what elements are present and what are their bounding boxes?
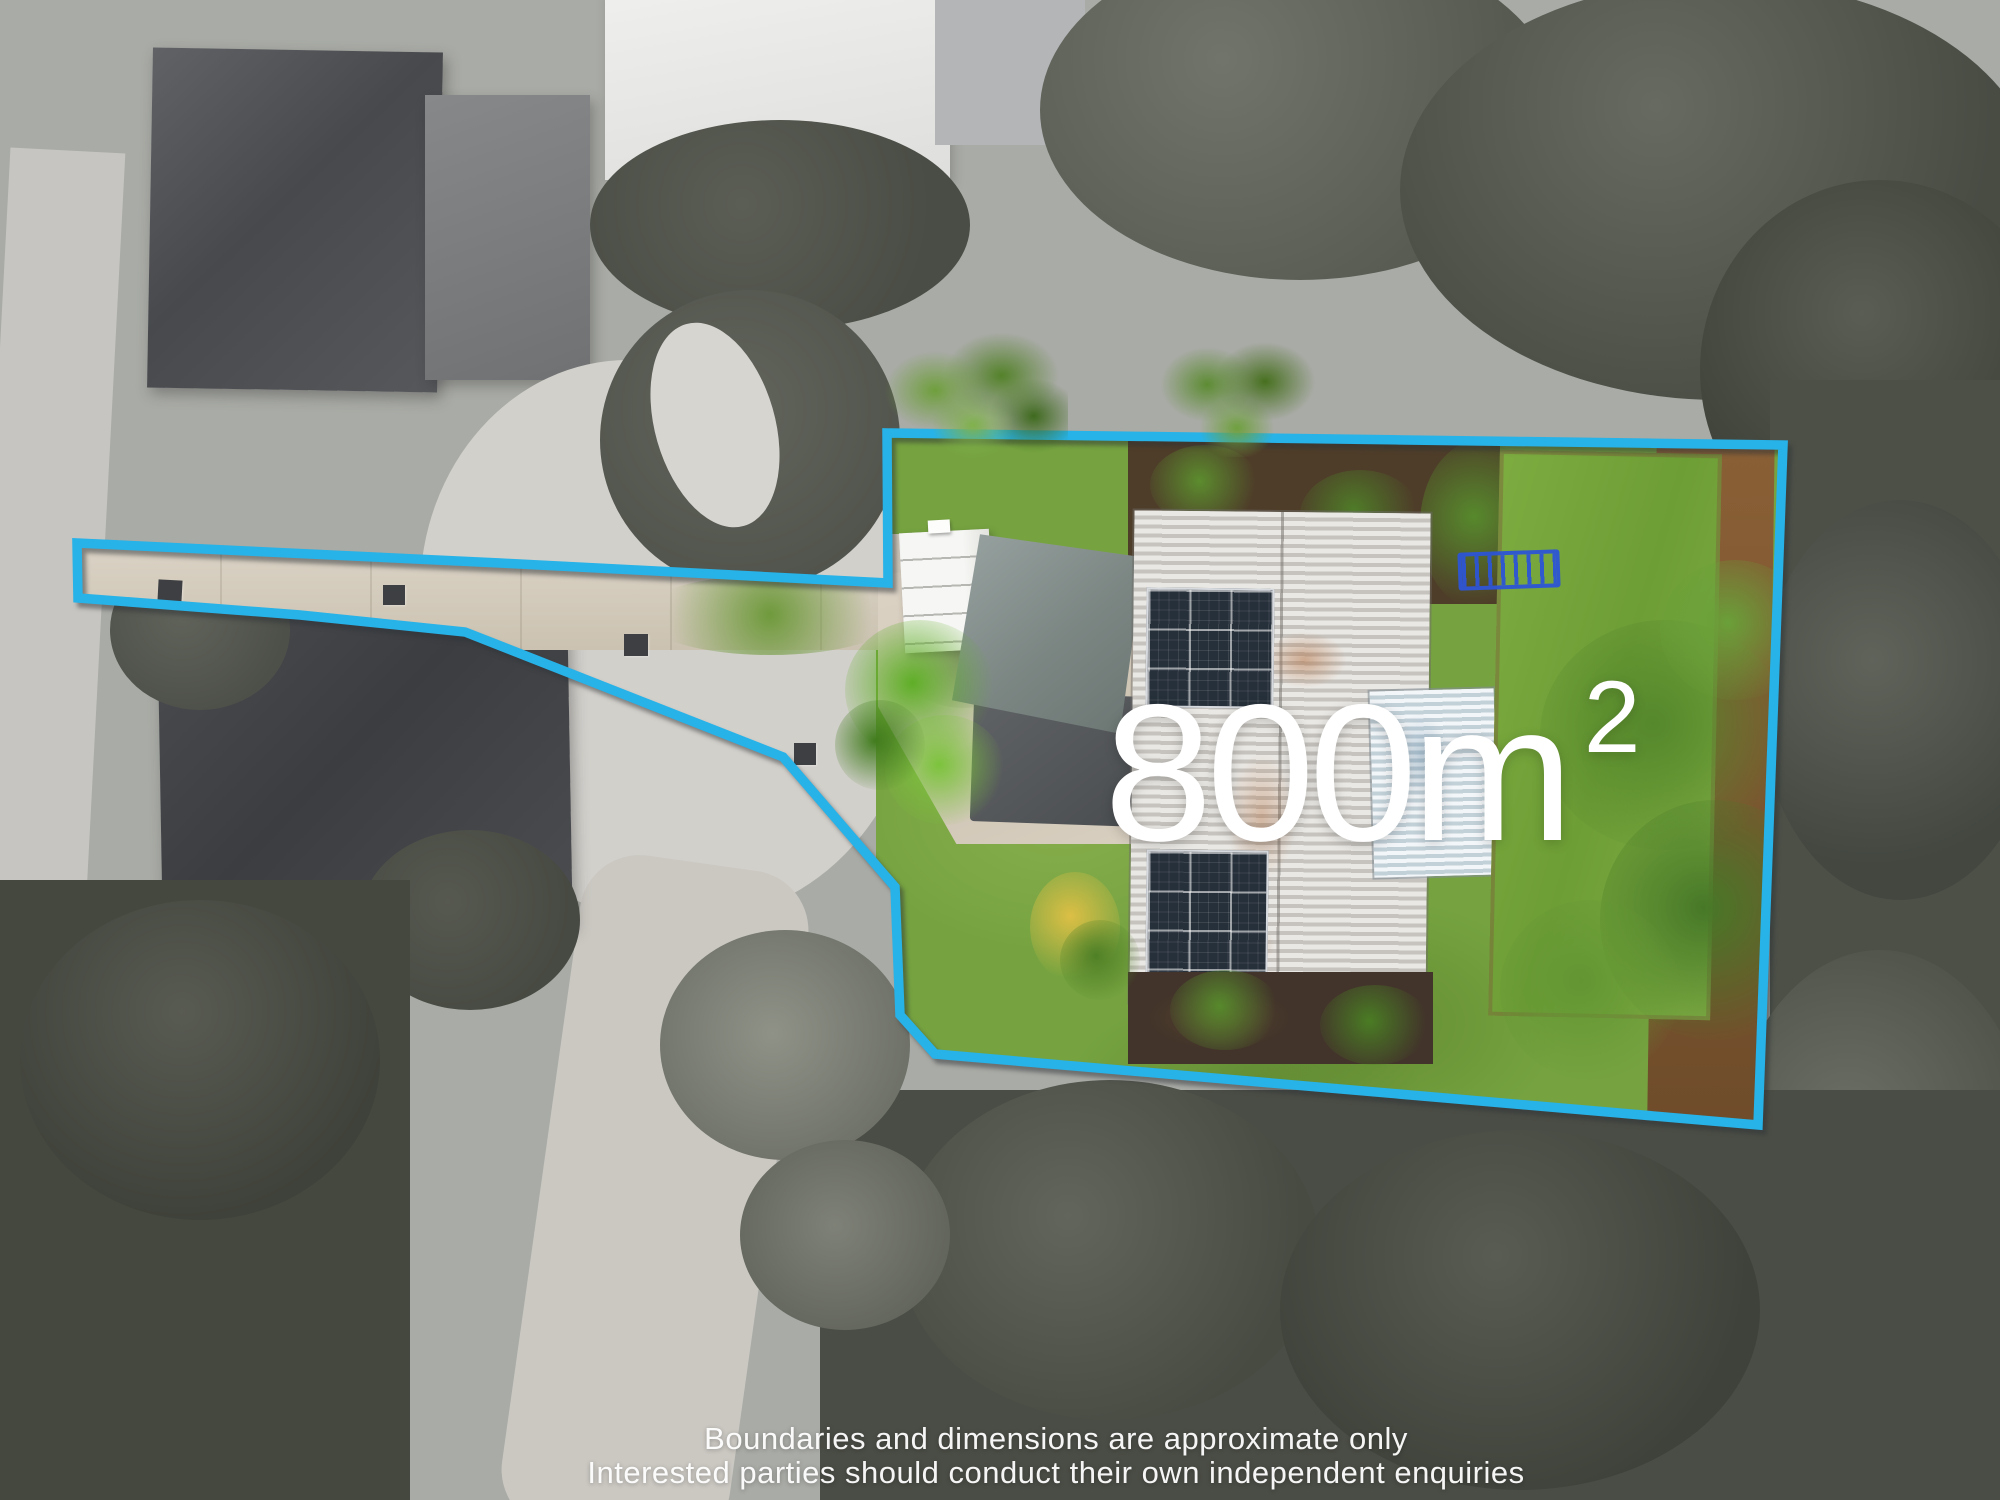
overhanging-tree-canopy — [878, 308, 1068, 458]
area-number: 800 — [1104, 664, 1411, 882]
disclaimer-line-2: Interested parties should conduct their … — [56, 1456, 2000, 1490]
aerial-photo-canvas: 800m2 Boundaries and dimensions are appr… — [0, 0, 2000, 1500]
area-label: 800m2 — [1104, 676, 1641, 871]
area-unit: m — [1411, 664, 1567, 882]
disclaimer-line-1: Boundaries and dimensions are approximat… — [56, 1422, 2000, 1456]
disclaimer: Boundaries and dimensions are approximat… — [56, 1422, 2000, 1490]
overhanging-tree-canopy — [1146, 312, 1321, 457]
area-exponent: 2 — [1584, 666, 1641, 768]
property-boundary-outline — [0, 0, 2000, 1500]
